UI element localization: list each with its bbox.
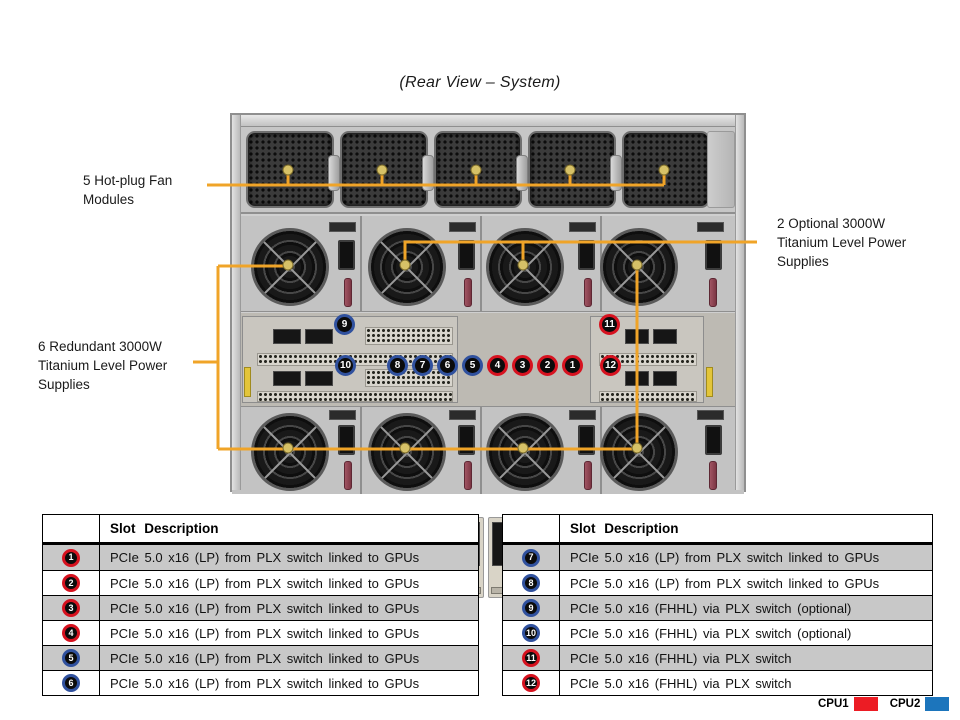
psu-divider bbox=[480, 407, 482, 494]
slot-number-badge: 2 bbox=[62, 574, 80, 592]
slot-table-left: Slot Description 1 PCIe 5.0 x16 (LP) fro… bbox=[42, 514, 479, 696]
table-row: 3 PCIe 5.0 x16 (LP) from PLX switch link… bbox=[43, 595, 478, 620]
lan-port bbox=[273, 371, 301, 386]
psu-label-sticker bbox=[329, 222, 356, 232]
fan-module bbox=[434, 131, 522, 208]
slot-number-badge: 11 bbox=[522, 649, 540, 667]
psu-divider bbox=[360, 216, 362, 311]
psu-release-handle bbox=[584, 461, 592, 490]
table-header: Slot Description bbox=[503, 515, 932, 545]
cpu2-legend-label: CPU2 bbox=[890, 698, 921, 710]
manual-figure-page: (Rear View – System) bbox=[0, 0, 960, 720]
cpu1-color-swatch bbox=[854, 697, 878, 711]
psu-power-inlet bbox=[705, 425, 722, 455]
lan-port bbox=[305, 329, 333, 344]
slot-number-badge: 4 bbox=[62, 624, 80, 642]
table-row: 5 PCIe 5.0 x16 (LP) from PLX switch link… bbox=[43, 645, 478, 670]
psu-fan bbox=[600, 413, 678, 491]
slot-description: PCIe 5.0 x16 (LP) from PLX switch linked… bbox=[100, 671, 478, 695]
slot-number-badge: 10 bbox=[522, 624, 540, 642]
fan-module bbox=[622, 131, 710, 208]
table-row: 11 PCIe 5.0 x16 (FHHL) via PLX switch bbox=[503, 645, 932, 670]
description-column-header: Slot Description bbox=[100, 515, 478, 542]
warning-sticker bbox=[244, 367, 251, 397]
psu-power-inlet bbox=[705, 240, 722, 270]
lan-port bbox=[625, 329, 649, 344]
slot-badge-2: 2 bbox=[537, 355, 558, 376]
psu-row-upper bbox=[232, 216, 744, 312]
slot-description: PCIe 5.0 x16 (FHHL) via PLX switch bbox=[560, 646, 932, 670]
psu-power-inlet bbox=[578, 240, 595, 270]
slot-badge-6: 6 bbox=[437, 355, 458, 376]
fan-module bbox=[340, 131, 428, 208]
psu-release-handle bbox=[344, 278, 352, 307]
slot-badge-7: 7 bbox=[412, 355, 433, 376]
slot-badge-11: 11 bbox=[599, 314, 620, 335]
psu-label-sticker bbox=[569, 222, 596, 232]
psu-fan bbox=[486, 413, 564, 491]
slot-description: PCIe 5.0 x16 (LP) from PLX switch linked… bbox=[100, 545, 478, 570]
table-row: 7 PCIe 5.0 x16 (LP) from PLX switch link… bbox=[503, 545, 932, 570]
psu-fan bbox=[251, 228, 329, 306]
lan-port bbox=[305, 371, 333, 386]
warning-sticker bbox=[706, 367, 713, 397]
slot-number-badge: 1 bbox=[62, 549, 80, 567]
slot-description: PCIe 5.0 x16 (FHHL) via PLX switch bbox=[560, 671, 932, 695]
psu-release-handle bbox=[709, 278, 717, 307]
slot-description: PCIe 5.0 x16 (LP) from PLX switch linked… bbox=[560, 571, 932, 595]
vent-perforation bbox=[257, 391, 453, 402]
slot-badge-8: 8 bbox=[387, 355, 408, 376]
lan-port bbox=[273, 329, 301, 344]
psu-label-sticker bbox=[697, 410, 724, 420]
slot-badge-4: 4 bbox=[487, 355, 508, 376]
slot-number-badge: 6 bbox=[62, 674, 80, 692]
slot-badge-10: 10 bbox=[335, 355, 356, 376]
fan-handle bbox=[610, 155, 622, 191]
table-row: 8 PCIe 5.0 x16 (LP) from PLX switch link… bbox=[503, 570, 932, 595]
optional-psu-callout-label: 2 Optional 3000W Titanium Level Power Su… bbox=[777, 214, 932, 271]
psu-power-inlet bbox=[458, 425, 475, 455]
chassis-top-edge bbox=[232, 115, 744, 127]
slot-description: PCIe 5.0 x16 (LP) from PLX switch linked… bbox=[100, 596, 478, 620]
fan-handle bbox=[328, 155, 340, 191]
psu-row-lower bbox=[232, 406, 744, 494]
psu-label-sticker bbox=[697, 222, 724, 232]
table-row: 10 PCIe 5.0 x16 (FHHL) via PLX switch (o… bbox=[503, 620, 932, 645]
slot-description: PCIe 5.0 x16 (LP) from PLX switch linked… bbox=[100, 646, 478, 670]
chassis-rail bbox=[735, 115, 744, 490]
psu-power-inlet bbox=[578, 425, 595, 455]
slot-table-right: Slot Description 7 PCIe 5.0 x16 (LP) fro… bbox=[502, 514, 933, 696]
psu-label-sticker bbox=[449, 222, 476, 232]
slot-description: PCIe 5.0 x16 (FHHL) via PLX switch (opti… bbox=[560, 596, 932, 620]
table-row: 12 PCIe 5.0 x16 (FHHL) via PLX switch bbox=[503, 670, 932, 695]
slot-number-badge: 3 bbox=[62, 599, 80, 617]
table-row: 6 PCIe 5.0 x16 (LP) from PLX switch link… bbox=[43, 670, 478, 695]
psu-label-sticker bbox=[569, 410, 596, 420]
slot-number-badge: 5 bbox=[62, 649, 80, 667]
vent-perforation bbox=[599, 391, 697, 402]
psu-fan bbox=[368, 413, 446, 491]
psu-power-inlet bbox=[338, 425, 355, 455]
fan-handle bbox=[516, 155, 528, 191]
slot-badge-1: 1 bbox=[562, 355, 583, 376]
redundant-psu-callout-label: 6 Redundant 3000W Titanium Level Power S… bbox=[38, 337, 196, 394]
psu-power-inlet bbox=[458, 240, 475, 270]
fan-module bbox=[528, 131, 616, 208]
cpu-legend: CPU1 CPU2 bbox=[818, 697, 949, 711]
rear-view-photo bbox=[230, 113, 746, 492]
slot-description: PCIe 5.0 x16 (LP) from PLX switch linked… bbox=[100, 621, 478, 645]
psu-fan bbox=[600, 228, 678, 306]
psu-release-handle bbox=[464, 461, 472, 490]
description-column-header: Slot Description bbox=[560, 515, 932, 542]
chassis-panel bbox=[707, 131, 735, 208]
table-row: 4 PCIe 5.0 x16 (LP) from PLX switch link… bbox=[43, 620, 478, 645]
psu-power-inlet bbox=[338, 240, 355, 270]
slot-number-badge: 9 bbox=[522, 599, 540, 617]
slot-description: PCIe 5.0 x16 (LP) from PLX switch linked… bbox=[100, 571, 478, 595]
slot-number-badge: 8 bbox=[522, 574, 540, 592]
psu-fan bbox=[486, 228, 564, 306]
vent-perforation bbox=[365, 327, 453, 345]
psu-divider bbox=[480, 216, 482, 311]
lan-port bbox=[625, 371, 649, 386]
fan-handle bbox=[422, 155, 434, 191]
psu-label-sticker bbox=[449, 410, 476, 420]
slot-badge-5: 5 bbox=[462, 355, 483, 376]
slot-badge-3: 3 bbox=[512, 355, 533, 376]
chassis-rail bbox=[232, 115, 241, 490]
slot-badge-12: 12 bbox=[600, 355, 621, 376]
cpu1-legend-label: CPU1 bbox=[818, 698, 849, 710]
fan-callout-label: 5 Hot-plug Fan Modules bbox=[83, 171, 195, 209]
slot-badge-9: 9 bbox=[334, 314, 355, 335]
psu-release-handle bbox=[464, 278, 472, 307]
slot-number-badge: 12 bbox=[522, 674, 540, 692]
psu-divider bbox=[360, 407, 362, 494]
lan-port bbox=[653, 329, 677, 344]
fan-module bbox=[246, 131, 334, 208]
slot-number-badge: 7 bbox=[522, 549, 540, 567]
psu-release-handle bbox=[344, 461, 352, 490]
psu-label-sticker bbox=[329, 410, 356, 420]
psu-fan bbox=[251, 413, 329, 491]
table-row: 1 PCIe 5.0 x16 (LP) from PLX switch link… bbox=[43, 545, 478, 570]
slot-column-header bbox=[43, 515, 100, 542]
slot-description: PCIe 5.0 x16 (LP) from PLX switch linked… bbox=[560, 545, 932, 570]
table-row: 9 PCIe 5.0 x16 (FHHL) via PLX switch (op… bbox=[503, 595, 932, 620]
figure-title: (Rear View – System) bbox=[0, 74, 960, 92]
psu-release-handle bbox=[709, 461, 717, 490]
cpu2-color-swatch bbox=[925, 697, 949, 711]
fan-row bbox=[232, 127, 744, 214]
lan-port bbox=[653, 371, 677, 386]
slot-description: PCIe 5.0 x16 (FHHL) via PLX switch (opti… bbox=[560, 621, 932, 645]
psu-fan bbox=[368, 228, 446, 306]
table-row: 2 PCIe 5.0 x16 (LP) from PLX switch link… bbox=[43, 570, 478, 595]
table-header: Slot Description bbox=[43, 515, 478, 545]
slot-column-header bbox=[503, 515, 560, 542]
psu-release-handle bbox=[584, 278, 592, 307]
